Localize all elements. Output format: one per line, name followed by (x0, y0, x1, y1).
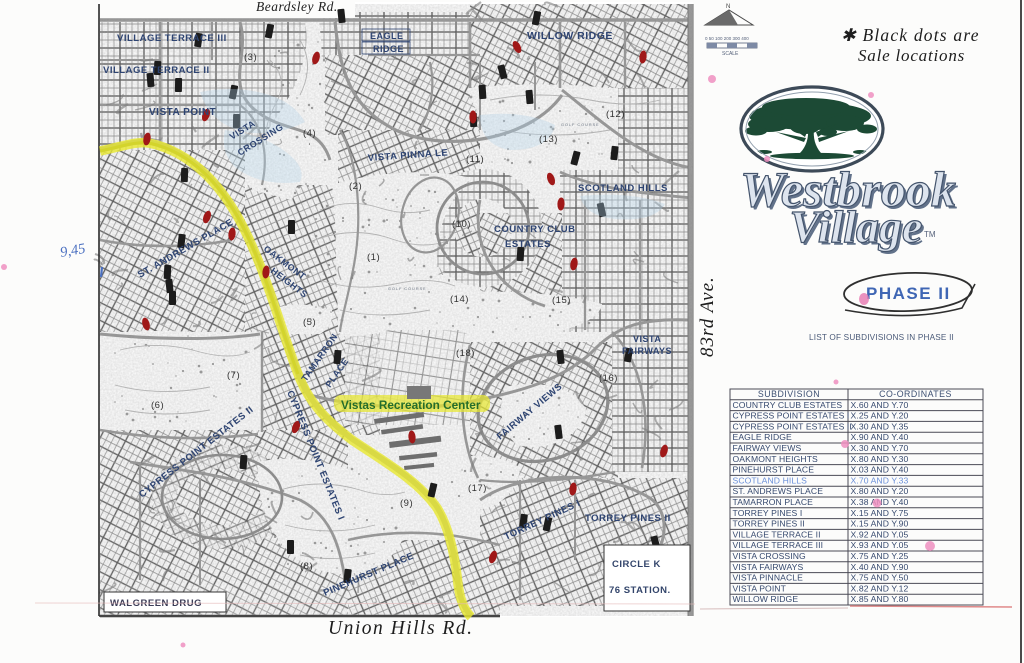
svg-text:(13): (13) (539, 134, 558, 145)
svg-text:(5): (5) (303, 317, 316, 328)
svg-text:X.82 AND Y.12: X.82 AND Y.12 (851, 583, 909, 593)
svg-text:TORREY PINES II: TORREY PINES II (585, 513, 671, 524)
svg-text:Village: Village (790, 201, 923, 252)
svg-text:CO-ORDINATES: CO-ORDINATES (879, 389, 952, 399)
svg-text:(2): (2) (349, 181, 362, 192)
svg-text:RIDGE: RIDGE (373, 44, 404, 54)
svg-text:X.30 AND Y.70: X.30 AND Y.70 (851, 443, 909, 453)
svg-text:GOLF COURSE: GOLF COURSE (561, 123, 600, 127)
svg-text:(1): (1) (367, 252, 380, 263)
svg-text:Union Hills Rd.: Union Hills Rd. (328, 618, 473, 639)
svg-text:(7): (7) (227, 370, 240, 381)
svg-text:X.85 AND Y.80: X.85 AND Y.80 (851, 594, 909, 604)
svg-text:(16): (16) (599, 373, 618, 384)
svg-text:0 50 100 200 300 400: 0 50 100 200 300 400 (705, 36, 749, 41)
svg-text:VILLAGE TERRACE II: VILLAGE TERRACE II (103, 65, 210, 76)
svg-text:EAGLE RIDGE: EAGLE RIDGE (733, 432, 793, 442)
svg-text:X.15 AND Y.90: X.15 AND Y.90 (851, 519, 909, 529)
svg-text:(8): (8) (300, 561, 313, 572)
svg-text:VILLAGE TERRACE III: VILLAGE TERRACE III (733, 540, 824, 550)
svg-text:LIST OF SUBDIVISIONS IN PHASE: LIST OF SUBDIVISIONS IN PHASE II (809, 333, 954, 342)
svg-text:X.15 AND Y.75: X.15 AND Y.75 (851, 508, 909, 518)
svg-text:(14): (14) (450, 294, 469, 305)
svg-text:VISTA POINT: VISTA POINT (149, 107, 216, 118)
svg-text:CYPRESS POINT ESTATES I: CYPRESS POINT ESTATES I (733, 411, 850, 421)
svg-text:(10): (10) (452, 219, 471, 230)
svg-text:(9): (9) (400, 498, 413, 509)
svg-text:X.93 AND Y.05: X.93 AND Y.05 (851, 540, 909, 550)
svg-text:COUNTRY CLUB ESTATES: COUNTRY CLUB ESTATES (733, 400, 843, 410)
svg-text:CIRCLE K: CIRCLE K (612, 559, 661, 570)
svg-text:VISTA PINNACLE: VISTA PINNACLE (733, 573, 804, 583)
svg-text:X.03 AND Y.40: X.03 AND Y.40 (851, 465, 909, 475)
svg-text:TAMARRON PLACE: TAMARRON PLACE (733, 497, 814, 507)
svg-text:SCOTLAND HILLS: SCOTLAND HILLS (733, 475, 808, 485)
svg-text:TM: TM (924, 230, 936, 239)
svg-text:X.60 AND Y.70: X.60 AND Y.70 (851, 400, 909, 410)
svg-text:✱ Black dots are: ✱ Black dots are (841, 25, 980, 45)
svg-text:(6): (6) (151, 400, 164, 411)
svg-text:Beardsley Rd.: Beardsley Rd. (256, 0, 338, 14)
svg-text:SUBDIVISION: SUBDIVISION (758, 389, 820, 399)
svg-text:PINEHURST PLACE: PINEHURST PLACE (733, 465, 815, 475)
svg-text:(3): (3) (244, 52, 257, 63)
svg-text:(15): (15) (552, 295, 571, 306)
svg-text:FAIRWAY VIEWS: FAIRWAY VIEWS (733, 443, 802, 453)
svg-text:(4): (4) (303, 128, 316, 139)
svg-text:ESTATES: ESTATES (505, 239, 551, 250)
svg-text:(12): (12) (606, 109, 625, 120)
svg-text:N: N (726, 4, 730, 10)
svg-text:76 STATION.: 76 STATION. (609, 585, 671, 596)
svg-text:ST. ANDREWS PLACE: ST. ANDREWS PLACE (733, 486, 824, 496)
svg-text:X.25 AND Y.20: X.25 AND Y.20 (851, 411, 909, 421)
svg-text:SCALE: SCALE (722, 51, 739, 57)
svg-text:X.80 AND Y.20: X.80 AND Y.20 (851, 486, 909, 496)
svg-text:TORREY PINES I: TORREY PINES I (733, 508, 803, 518)
svg-text:X.80 AND Y.30: X.80 AND Y.30 (851, 454, 909, 464)
svg-text:FAIRWAYS: FAIRWAYS (622, 346, 672, 356)
svg-text:SCOTLAND HILLS: SCOTLAND HILLS (578, 183, 668, 194)
svg-text:WILLOW RIDGE: WILLOW RIDGE (527, 30, 613, 42)
svg-text:PHASE II: PHASE II (866, 284, 951, 303)
svg-text:VISTA POINT: VISTA POINT (733, 583, 787, 593)
svg-text:VISTA: VISTA (633, 334, 661, 344)
svg-text:EAGLE: EAGLE (370, 31, 404, 41)
svg-text:X.90 AND Y.40: X.90 AND Y.40 (851, 432, 909, 442)
svg-text:Vistas Recreation Center: Vistas Recreation Center (341, 398, 481, 412)
svg-text:Sale locations: Sale locations (858, 46, 965, 65)
svg-text:GOLF COURSE: GOLF COURSE (388, 287, 427, 291)
svg-text:OAKMONT HEIGHTS: OAKMONT HEIGHTS (733, 454, 819, 464)
svg-text:X.40 AND Y.90: X.40 AND Y.90 (851, 562, 909, 572)
svg-text:(11): (11) (466, 154, 484, 165)
svg-text:(18): (18) (456, 348, 475, 359)
svg-text:WILLOW RIDGE: WILLOW RIDGE (733, 594, 799, 604)
svg-text:VILLAGE TERRACE III: VILLAGE TERRACE III (117, 33, 227, 44)
svg-text:VILLAGE TERRACE II: VILLAGE TERRACE II (733, 529, 821, 539)
svg-text:(17): (17) (468, 483, 487, 494)
svg-text:VISTA FAIRWAYS: VISTA FAIRWAYS (733, 562, 804, 572)
svg-text:83rd Ave.: 83rd Ave. (697, 276, 718, 357)
svg-text:CYPRESS POINT ESTATES II: CYPRESS POINT ESTATES II (733, 421, 852, 431)
svg-text:X.75 AND Y.25: X.75 AND Y.25 (851, 551, 909, 561)
svg-text:X.75 AND Y.50: X.75 AND Y.50 (851, 573, 909, 583)
svg-text:X.30 AND Y.35: X.30 AND Y.35 (851, 421, 909, 431)
svg-text:X.70 AND Y.33: X.70 AND Y.33 (851, 475, 909, 485)
svg-text:X.92 AND Y.05: X.92 AND Y.05 (851, 529, 909, 539)
svg-text:TORREY PINES II: TORREY PINES II (733, 519, 805, 529)
svg-text:COUNTRY CLUB: COUNTRY CLUB (494, 224, 575, 235)
svg-text:VISTA CROSSING: VISTA CROSSING (733, 551, 807, 561)
